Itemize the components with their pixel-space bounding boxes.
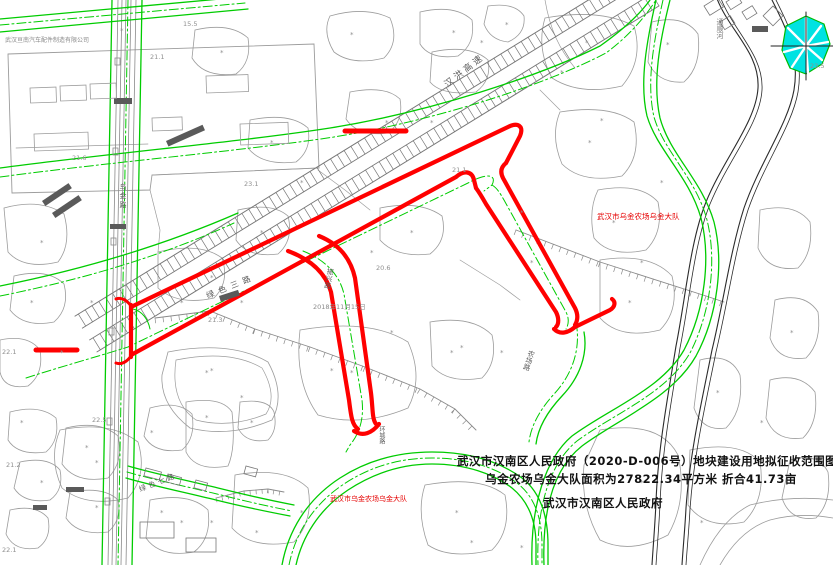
vegetation-mark: * — [270, 140, 274, 147]
elevation-label: 21.6 — [72, 154, 86, 162]
layer-structures — [30, 0, 783, 552]
vegetation-mark: * — [210, 520, 214, 527]
map-subtitle: 乌金农场乌金大队面积为27822.34平方米 折合41.73亩 — [485, 473, 797, 486]
vegetation-mark: * — [205, 415, 209, 422]
vegetation-mark: * — [520, 545, 524, 552]
parcel-owner-label-south: 武汉市乌金农场乌金大队 — [330, 495, 407, 503]
vegetation-mark: * — [455, 510, 459, 517]
vegetation-mark: * — [370, 250, 374, 257]
vegetation-mark: * — [220, 50, 224, 57]
vegetation-mark: * — [95, 460, 99, 467]
vegetation-mark: * — [530, 260, 534, 267]
vegetation-mark: * — [450, 350, 454, 357]
vegetation-mark: * — [628, 300, 632, 307]
vegetation-mark: * — [600, 118, 604, 125]
vegetation-mark: * — [716, 390, 720, 397]
elevation-label: 23.5 — [810, 62, 824, 70]
vegetation-mark: * — [30, 300, 34, 307]
vegetation-mark: * — [40, 240, 44, 247]
elevation-label: 15.5 — [183, 20, 197, 28]
vegetation-mark: * — [210, 275, 214, 282]
vegetation-mark: * — [180, 520, 184, 527]
elevation-label: 20.6 — [376, 264, 390, 272]
issuing-authority-label: 武汉市汉南区人民政府 — [543, 497, 663, 510]
vegetation-mark: * — [452, 30, 456, 37]
vegetation-mark: * — [205, 370, 209, 377]
parcel-owner-label-north: 武汉市乌金农场乌金大队 — [597, 213, 680, 222]
vegetation-mark: * — [85, 445, 89, 452]
vegetation-mark: * — [240, 395, 244, 402]
vegetation-mark: * — [480, 40, 484, 47]
vegetation-mark: * — [20, 420, 24, 427]
vegetation-mark: * — [300, 510, 304, 517]
elevation-label: 22.5 — [92, 416, 106, 424]
vegetation-mark: * — [390, 330, 394, 337]
elevation-label: 21.2 — [6, 461, 20, 469]
vegetation-mark: * — [760, 420, 764, 427]
vegetation-mark: * — [95, 505, 99, 512]
elevation-label: 22.1 — [2, 348, 16, 356]
vegetation-mark: * — [560, 70, 564, 77]
elevation-label: 22.1 — [2, 546, 16, 554]
vegetation-mark: * — [520, 210, 524, 217]
elevation-label: 21.3 — [208, 316, 222, 324]
vegetation-mark: * — [90, 300, 94, 307]
map-stage: ****************************************… — [0, 0, 833, 565]
vegetation-mark: * — [350, 32, 354, 39]
vegetation-mark: * — [255, 530, 259, 537]
vegetation-mark: * — [385, 120, 389, 127]
vegetation-mark: * — [500, 350, 504, 357]
elevation-label: 21.1 — [150, 53, 164, 61]
elevation-label: 21.1 — [452, 166, 466, 174]
vegetation-mark: * — [640, 260, 644, 267]
vegetation-mark: * — [40, 480, 44, 487]
vegetation-mark: * — [150, 430, 154, 437]
vegetation-mark: * — [666, 42, 670, 49]
date-label: 2018年11月15日 — [313, 304, 366, 311]
vegetation-mark: * — [700, 520, 704, 527]
vegetation-mark: * — [60, 350, 64, 357]
vegetation-mark: * — [330, 368, 334, 375]
vegetation-mark: * — [505, 22, 509, 29]
elevation-label: 23.1 — [244, 180, 258, 188]
vegetation-mark: * — [660, 180, 664, 187]
vegetation-mark: * — [460, 345, 464, 352]
vegetation-mark: * — [180, 300, 184, 307]
river-name-label: 通顺河 — [716, 18, 724, 39]
vegetation-mark: * — [240, 300, 244, 307]
road-label-huancheng-road: 环城路 — [377, 426, 384, 444]
map-title: 武汉市汉南区人民政府（2020-D-006号）地块建设用地拟征收范围图 — [457, 455, 833, 468]
vegetation-mark: * — [790, 330, 794, 337]
vegetation-mark: * — [410, 230, 414, 237]
vegetation-mark: * — [260, 230, 264, 237]
vegetation-mark: * — [300, 180, 304, 187]
vegetation-mark: * — [585, 40, 589, 47]
vegetation-mark: * — [470, 540, 474, 547]
vegetation-mark: * — [250, 420, 254, 427]
road-label-wujin-road: 乌金路 — [119, 183, 127, 210]
vegetation-mark: * — [350, 370, 354, 377]
company-label: 武汉亘南汽车配件制造有限公司 — [5, 38, 89, 45]
vegetation-mark: * — [210, 368, 214, 375]
vegetation-mark: * — [120, 28, 124, 35]
vegetation-mark: * — [588, 140, 592, 147]
vegetation-mark: * — [160, 510, 164, 517]
vegetation-mark: * — [430, 120, 434, 127]
